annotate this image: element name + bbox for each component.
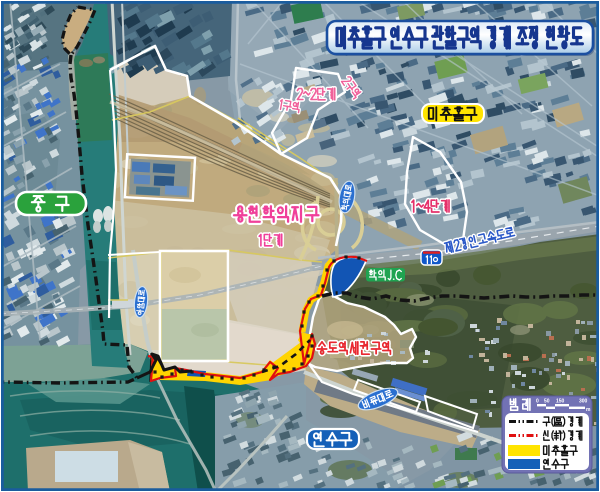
- svg-text:150: 150: [556, 399, 565, 405]
- svg-text:0: 0: [536, 399, 539, 405]
- svg-text:m: m: [586, 407, 591, 413]
- svg-text:300: 300: [579, 399, 588, 405]
- svg-text:50: 50: [544, 399, 550, 405]
